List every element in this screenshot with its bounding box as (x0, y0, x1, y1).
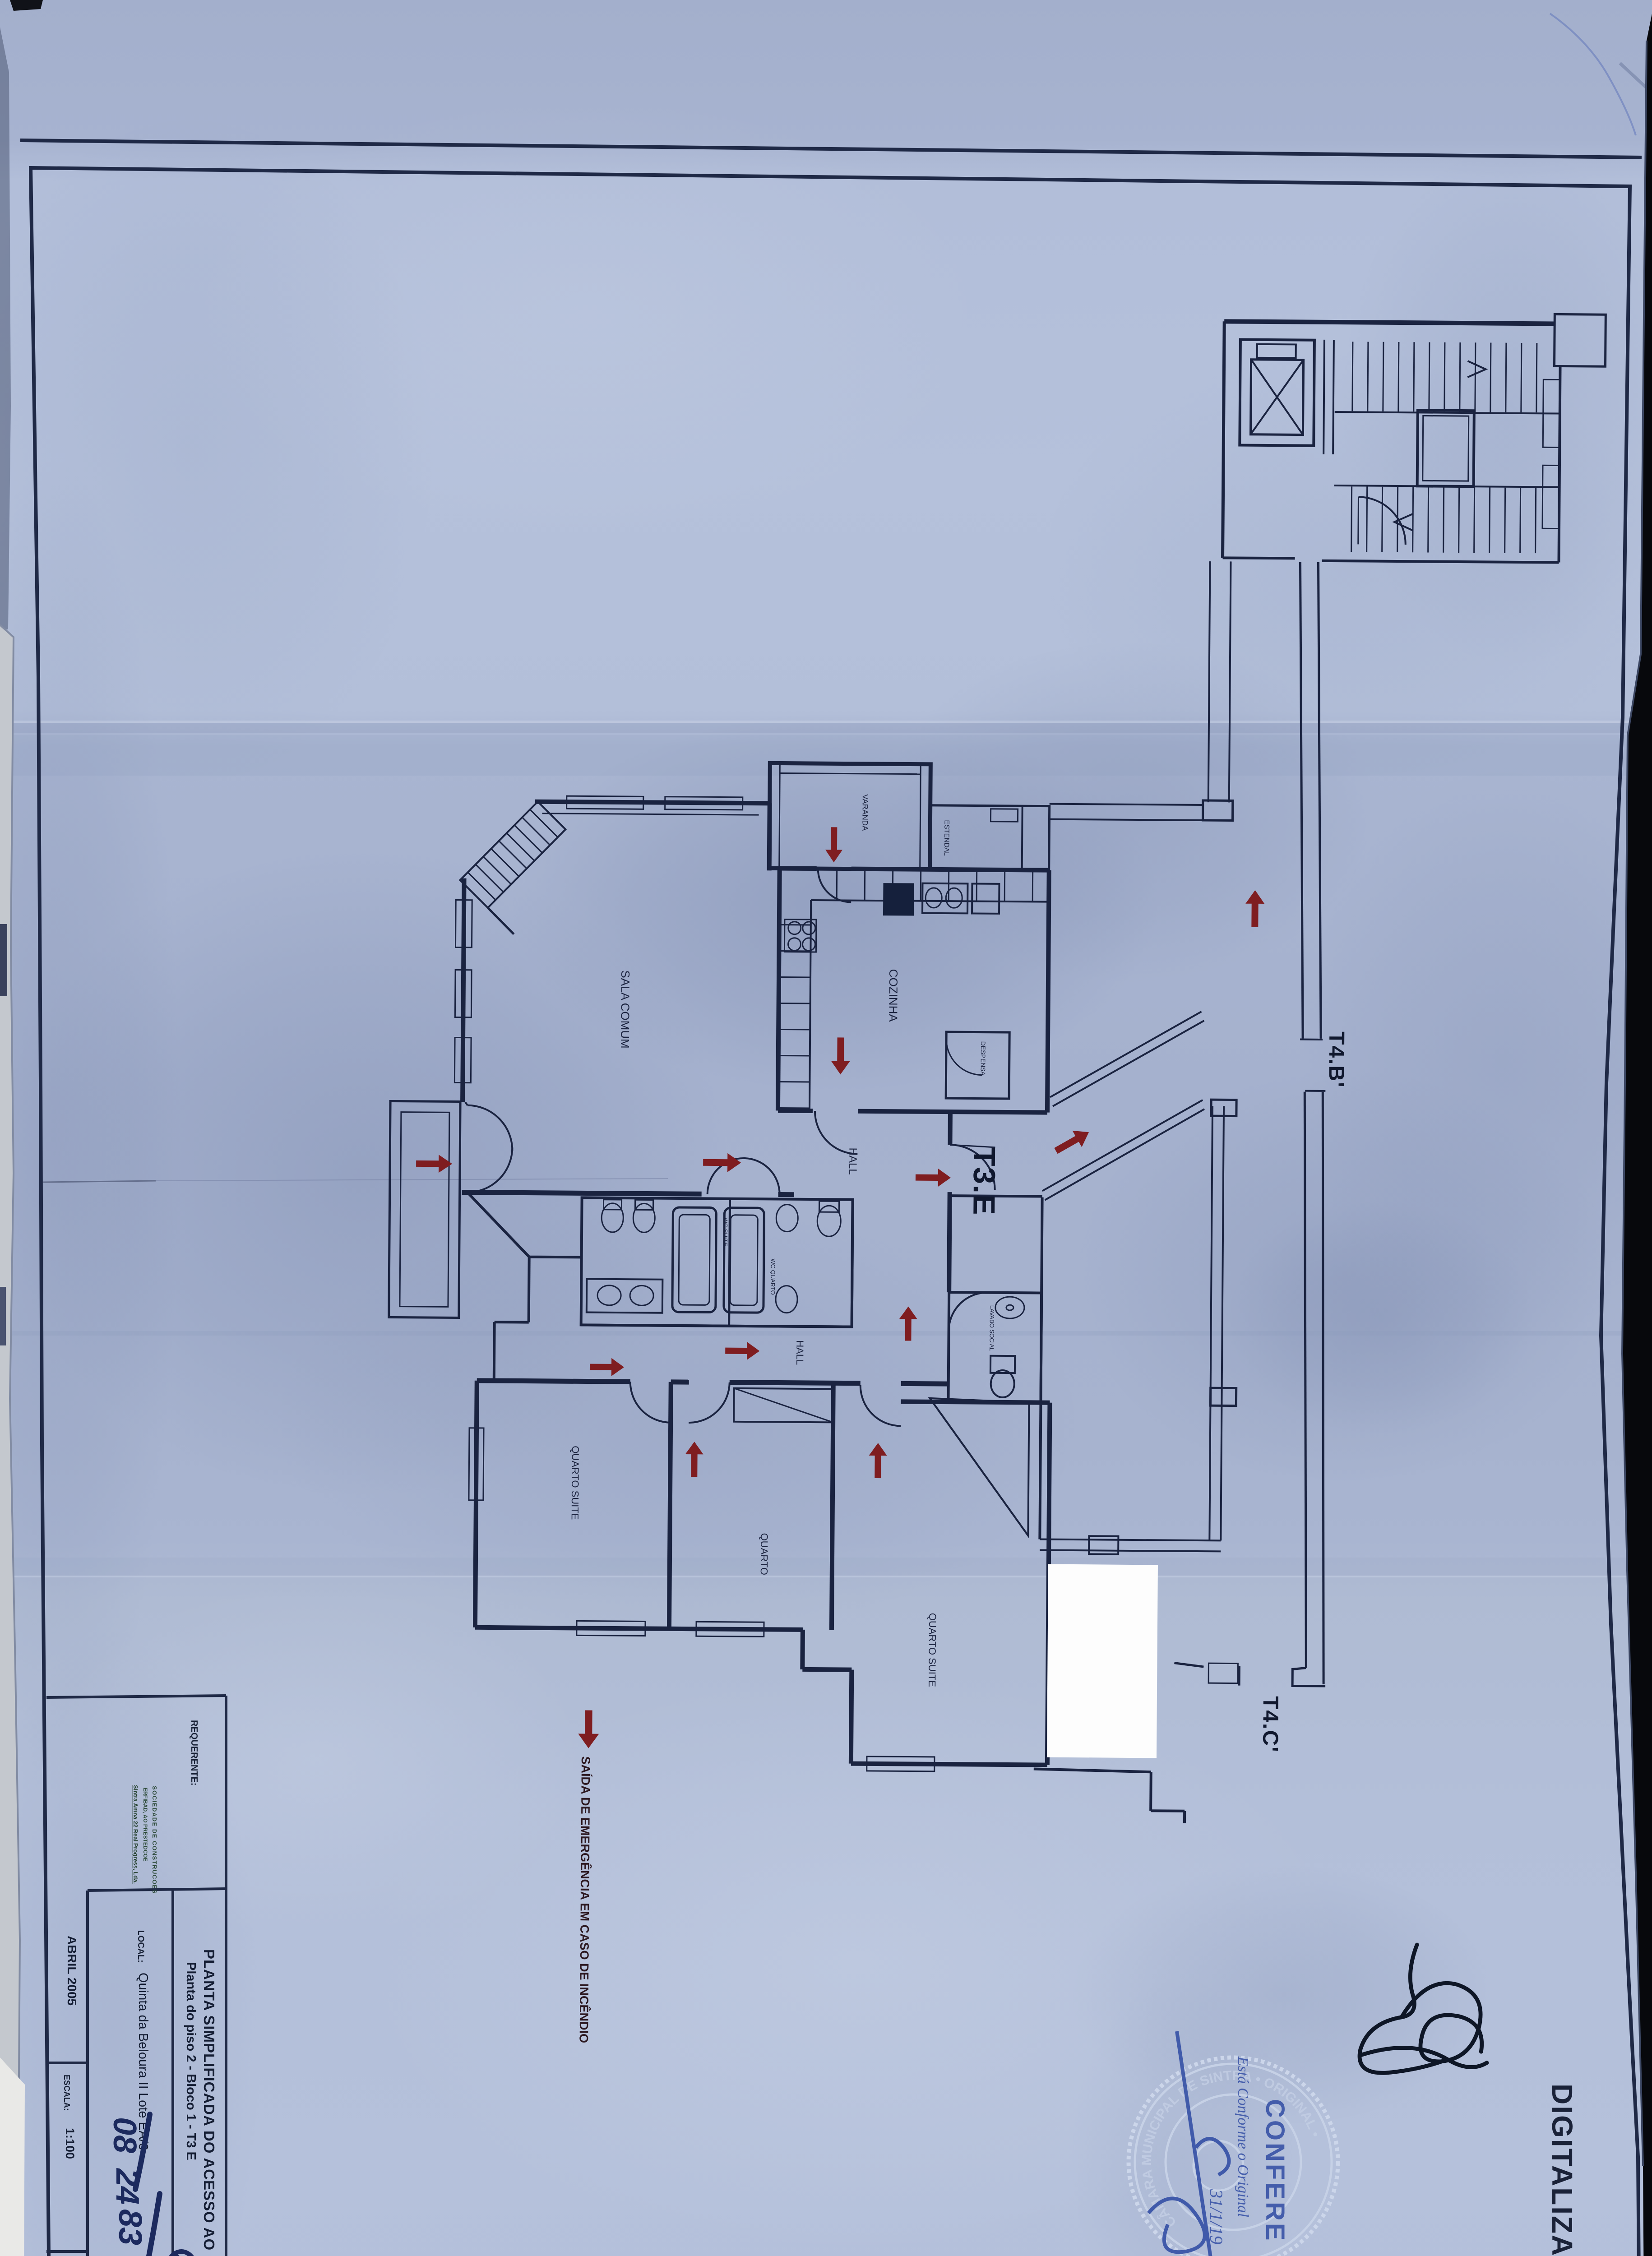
svg-text:T4.B': T4.B' (1324, 1031, 1348, 1088)
svg-text:T3.E: T3.E (967, 1147, 1001, 1216)
svg-text:ABRIL 2005: ABRIL 2005 (65, 1936, 79, 2006)
svg-text:QUARTO SUITE: QUARTO SUITE (926, 1613, 938, 1687)
svg-text:QUARTO: QUARTO (759, 1533, 770, 1576)
svg-text:Está Conforme o Original: Está Conforme o Original (1235, 2056, 1251, 2217)
svg-text:LOCAL:: LOCAL: (136, 1930, 145, 1963)
svg-text:COZINHA: COZINHA (886, 969, 900, 1022)
svg-text:REQUERENTE:: REQUERENTE: (189, 1720, 199, 1786)
svg-text:SALA COMUM: SALA COMUM (618, 970, 632, 1049)
svg-text:DIGITALIZADO: DIGITALIZADO (1546, 2084, 1578, 2256)
svg-text:LAVABO SOCIAL: LAVABO SOCIAL (988, 1305, 995, 1351)
svg-text:ERFIBAD, AO PRESTEDCOE: ERFIBAD, AO PRESTEDCOE (142, 1788, 148, 1862)
svg-text:Sintra Amna 22 Real Progress,: Sintra Amna 22 Real Progress, Lda. (132, 1785, 139, 1884)
svg-text:SOCIEDADE DE CONSTRUCOES: SOCIEDADE DE CONSTRUCOES (151, 1786, 158, 1894)
svg-text:83: 83 (112, 2209, 148, 2245)
svg-text:SAÍDA DE EMERGÊNCIA EM CASO DE: SAÍDA DE EMERGÊNCIA EM CASO DE INCÊNDIO (577, 1756, 593, 2043)
svg-text:Planta do piso 2 - Bloco 1 - T: Planta do piso 2 - Bloco 1 - T3 E (184, 1962, 198, 2160)
svg-text:HALL: HALL (794, 1340, 805, 1365)
svg-text:WC QUARTO: WC QUARTO (769, 1258, 777, 1295)
svg-text:DESPENSA: DESPENSA (980, 1041, 987, 1076)
svg-text:QUARTO SUITE: QUARTO SUITE (569, 1446, 581, 1520)
svg-text:WC SUITE: WC SUITE (722, 1218, 729, 1247)
svg-text:CONFERE: CONFERE (1260, 2099, 1290, 2243)
svg-text:HALL: HALL (847, 1148, 859, 1175)
svg-text:1:100: 1:100 (63, 2128, 77, 2159)
svg-text:08: 08 (106, 2117, 143, 2153)
svg-text:VARANDA: VARANDA (861, 794, 870, 831)
svg-text:ESTENDAL: ESTENDAL (943, 820, 951, 855)
svg-text:T4.C': T4.C' (1258, 1696, 1282, 1753)
svg-text:PLANTA SIMPLIFICADA DO ACESSO: PLANTA SIMPLIFICADA DO ACESSO AO FOGO (201, 1949, 217, 2256)
svg-text:ESCALA:: ESCALA: (62, 2075, 71, 2111)
